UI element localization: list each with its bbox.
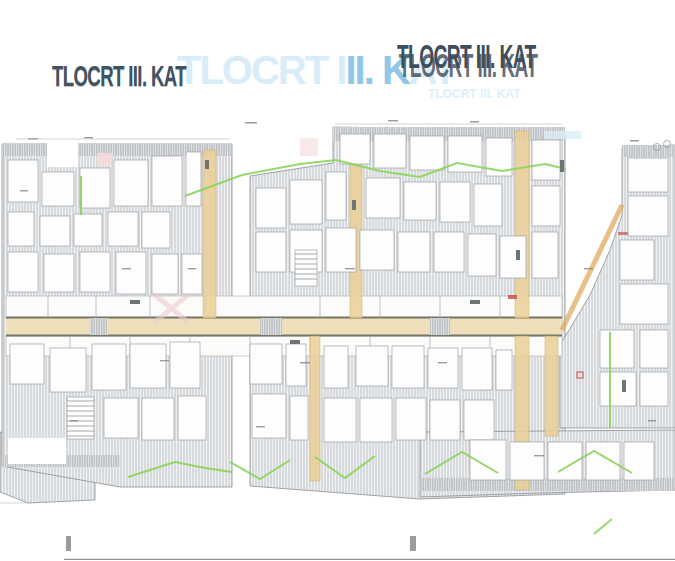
- courtyard-notch: [47, 143, 78, 167]
- room: [366, 178, 400, 218]
- tiny-label: [245, 122, 257, 124]
- room: [290, 180, 322, 224]
- room: [182, 254, 202, 294]
- listing-image: TLOCRT III. KAT TLOCRT III. KAT TLOCRT I…: [0, 0, 675, 561]
- tiny-label: [188, 268, 196, 269]
- room: [586, 442, 620, 480]
- wall-detail: [130, 300, 140, 304]
- room: [44, 254, 74, 292]
- room: [170, 342, 200, 388]
- room: [430, 400, 460, 440]
- room: [532, 140, 560, 180]
- room: [360, 230, 394, 270]
- watermark-smudge: [545, 131, 581, 139]
- room: [256, 232, 286, 272]
- bottom-reference-marks: [64, 536, 675, 559]
- tiny-label: [630, 140, 639, 142]
- room: [500, 236, 526, 278]
- room: [392, 346, 424, 388]
- pink-room-tint: [97, 153, 112, 166]
- room: [286, 344, 306, 386]
- room: [404, 182, 436, 220]
- room: [326, 172, 346, 220]
- room: [8, 252, 38, 292]
- room: [250, 344, 282, 384]
- room: [434, 232, 464, 272]
- room: [532, 186, 560, 226]
- room: [640, 372, 668, 406]
- room: [468, 234, 496, 276]
- plan-title-left: TLOCRT III. KAT: [52, 61, 186, 91]
- room: [374, 134, 406, 168]
- balcony-strip: [622, 145, 675, 157]
- corridor-fill: [6, 318, 562, 335]
- wall-detail: [622, 380, 626, 392]
- room: [116, 252, 146, 294]
- room: [8, 160, 38, 202]
- green-line-small: [594, 519, 612, 534]
- room: [462, 348, 492, 390]
- room: [600, 372, 636, 406]
- red-mark: [508, 295, 517, 299]
- room: [186, 152, 201, 206]
- room: [620, 240, 654, 280]
- room: [80, 168, 110, 208]
- room: [510, 442, 544, 480]
- wall-detail: [560, 160, 564, 172]
- room: [324, 398, 356, 442]
- room: [108, 212, 138, 246]
- wall-detail: [352, 200, 356, 210]
- shaft: [545, 336, 558, 436]
- corridor-spine: [6, 296, 562, 356]
- room: [496, 350, 512, 390]
- room: [80, 252, 110, 292]
- room: [152, 156, 182, 206]
- room: [114, 160, 148, 206]
- room: [8, 212, 34, 246]
- tiny-label: [70, 420, 78, 421]
- room: [398, 232, 430, 272]
- room: [428, 348, 458, 388]
- room: [628, 158, 668, 192]
- shaft: [515, 131, 529, 318]
- wall-detail: [205, 160, 209, 169]
- reference-tick: [66, 536, 71, 551]
- room: [532, 232, 558, 278]
- room: [152, 254, 178, 294]
- room: [620, 284, 668, 324]
- room: [600, 330, 634, 368]
- tiny-label: [256, 426, 265, 427]
- room: [42, 172, 74, 206]
- tiny-label: [388, 120, 398, 122]
- tiny-label: [438, 362, 447, 363]
- room: [10, 344, 44, 384]
- tiny-label: [584, 268, 593, 269]
- corridor-stair-segment: [430, 318, 450, 335]
- staircase: [295, 250, 317, 286]
- staircase: [67, 397, 94, 439]
- tiny-label: [84, 137, 93, 139]
- room: [628, 196, 668, 236]
- watermark-title-blue-pre: TLOCRT I: [177, 48, 345, 92]
- room: [256, 188, 286, 228]
- tiny-label: [534, 455, 544, 456]
- room: [440, 182, 470, 222]
- wall-detail: [516, 250, 520, 260]
- room: [252, 394, 286, 438]
- corridor-stair-segment: [90, 318, 108, 335]
- room: [410, 136, 444, 170]
- room: [464, 400, 494, 440]
- tiny-label: [20, 190, 28, 191]
- room: [396, 398, 426, 440]
- room: [50, 348, 86, 392]
- room: [40, 216, 70, 246]
- plan-title-faint-echo: TLOCRT III. KAT: [428, 88, 520, 100]
- wall-detail: [290, 340, 300, 344]
- tiny-label: [345, 268, 355, 269]
- red-mark: [618, 232, 628, 235]
- room: [92, 344, 126, 390]
- room: [324, 346, 348, 388]
- tiny-label: [300, 362, 310, 363]
- room: [142, 212, 170, 248]
- tiny-label: [122, 268, 131, 269]
- room: [290, 396, 308, 440]
- room: [340, 134, 370, 164]
- wall-detail: [470, 300, 480, 304]
- shaft: [203, 150, 216, 318]
- corridor-stair-segment: [260, 318, 282, 335]
- room: [624, 442, 654, 480]
- room: [360, 398, 392, 442]
- corridor-room-band: [6, 296, 562, 318]
- room: [178, 396, 206, 440]
- room: [74, 214, 102, 246]
- room: [474, 184, 502, 226]
- room: [104, 398, 138, 438]
- room: [356, 346, 388, 386]
- tiny-label: [160, 360, 169, 361]
- tiny-label: [648, 420, 656, 421]
- room: [130, 344, 166, 388]
- courtyard-notch: [8, 438, 66, 464]
- reference-tick: [410, 536, 416, 551]
- pink-room-tint: [300, 138, 318, 156]
- plan-title-right: TLOCRT III. KAT: [397, 40, 536, 73]
- room: [326, 228, 356, 272]
- room: [640, 330, 668, 368]
- room: [142, 398, 174, 440]
- tiny-label: [470, 121, 479, 123]
